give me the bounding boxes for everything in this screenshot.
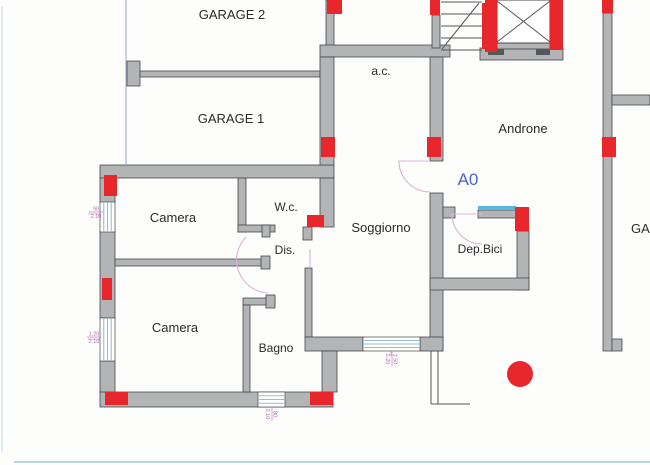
label-soggiorno: Soggiorno — [351, 220, 410, 235]
bagno-top-cap — [266, 295, 275, 308]
floor-plan-canvas: GARAGE 2GARAGE 1Andronea.c.W.c.CameraSog… — [0, 0, 650, 465]
marker-wc-corner — [307, 215, 324, 227]
label-unit-a0: A0 — [458, 170, 479, 189]
marker-bottom-left — [105, 392, 128, 405]
marker-ac-right — [427, 137, 441, 157]
depbici-bottom-wall — [430, 278, 529, 290]
depbici-door-stub — [443, 207, 455, 218]
dim-soggiorno-window-height: 2.20 — [384, 354, 390, 365]
left-wall-mid — [100, 231, 115, 318]
label-androne: Androne — [498, 121, 547, 136]
marker-elevator-right — [550, 0, 563, 50]
label-ac: a.c. — [371, 64, 390, 78]
marker-bottom-mid — [310, 392, 333, 405]
label-garage-right: GAR — [631, 221, 650, 236]
depbici-window-glass — [478, 206, 516, 210]
camera-divider-wall — [115, 259, 262, 266]
left-wall-lower — [100, 361, 115, 393]
dim-bagno-window-height: 2.10 — [264, 409, 270, 420]
garage-pillar — [127, 61, 140, 86]
garage-divider-wall — [140, 71, 320, 77]
bagno-left-wall — [243, 305, 250, 392]
dim-bagno-window-width: 80 — [272, 411, 278, 417]
marker-right-wall-top — [602, 0, 613, 13]
marker-ac-top — [327, 0, 342, 14]
main-top-wall — [100, 165, 334, 178]
right-branch-wall — [612, 95, 650, 105]
dim-left-lower-window: 1.202.10 — [87, 332, 101, 346]
label-wc: W.c. — [274, 200, 297, 214]
label-camera-1: Camera — [150, 210, 197, 225]
dim-bagno-window: 802.10 — [264, 407, 278, 421]
ac-top-wall — [320, 45, 450, 57]
door-a0-entrance — [399, 161, 430, 192]
right-wall-foot — [612, 339, 622, 351]
red-dot — [507, 361, 533, 387]
label-camera-2: Camera — [152, 320, 199, 335]
stair-left-wall — [432, 15, 440, 48]
soggiorno-left-thin-wall — [305, 268, 312, 337]
label-depbici: Dep.Bici — [458, 242, 503, 256]
door-depbici — [452, 214, 482, 244]
dim-soggiorno-window: 1.502.20 — [384, 352, 398, 366]
floor-plan-scan: GARAGE 2GARAGE 1Andronea.c.W.c.CameraSog… — [0, 0, 650, 465]
wc-bottom-cap — [262, 225, 270, 237]
right-outer-wall — [603, 13, 612, 351]
label-garage2: GARAGE 2 — [199, 7, 265, 22]
dim-left-upper-window-height: 2.10 — [91, 214, 102, 220]
marker-ac-left — [321, 137, 335, 157]
marker-elevator-left — [485, 0, 497, 52]
label-dis: Dis. — [275, 243, 296, 257]
camera-divider-cap — [261, 256, 270, 269]
soggiorno-notch — [303, 227, 312, 240]
marker-left-wall-mid — [102, 278, 112, 300]
terrace-wall — [322, 351, 337, 392]
elevator-notch-right — [536, 49, 550, 55]
wc-left-wall — [238, 178, 246, 232]
dim-left-upper-window-width: 90 — [93, 207, 99, 213]
label-garage1: GARAGE 1 — [198, 111, 264, 126]
soggiorno-right-wall — [430, 193, 443, 351]
dim-soggiorno-window-width: 1.50 — [392, 354, 398, 365]
marker-left-wall-upper — [104, 175, 117, 196]
marker-stair-wall-top — [430, 0, 440, 15]
soggiorno-bottom-wall — [305, 337, 363, 351]
bottom-wall — [100, 392, 333, 407]
soggiorno-bottom-corner — [420, 337, 443, 351]
marker-depbici — [515, 207, 529, 231]
marker-right-wall-mid — [602, 137, 616, 157]
dim-left-lower-window-height: 2.10 — [89, 339, 100, 345]
depbici-window-sill — [478, 210, 516, 218]
dim-left-lower-window-width: 1.20 — [89, 332, 100, 338]
label-bagno: Bagno — [259, 341, 294, 355]
